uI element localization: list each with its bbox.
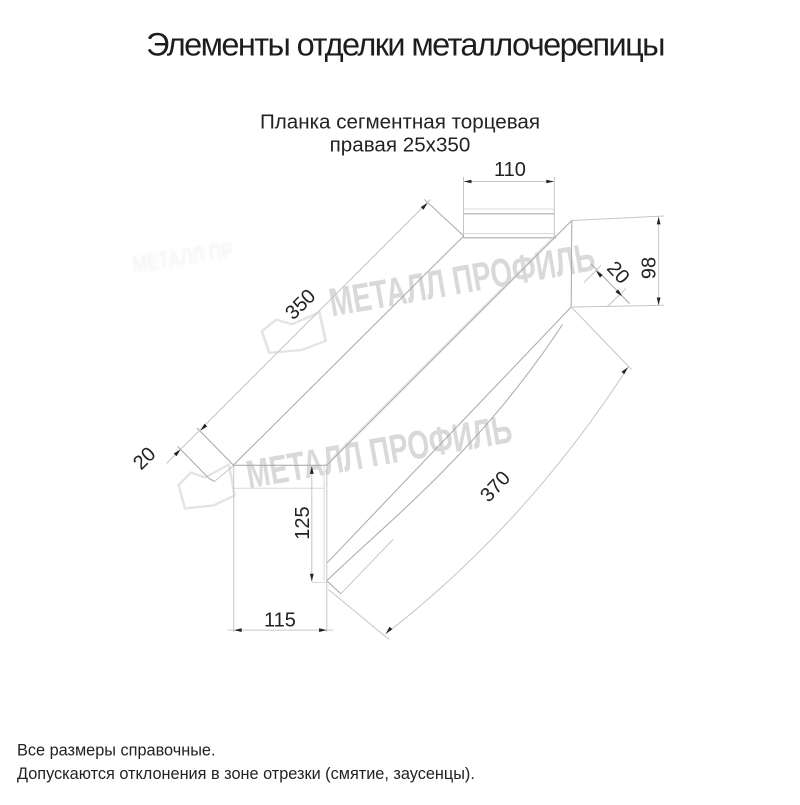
svg-text:Элементы отделки металлочерепи: Элементы отделки металлочерепицы — [146, 26, 664, 62]
svg-text:правая 25х350: правая 25х350 — [330, 134, 471, 157]
svg-text:125: 125 — [292, 506, 314, 539]
svg-text:98: 98 — [639, 257, 661, 279]
svg-text:115: 115 — [264, 610, 296, 632]
svg-text:Планка сегментная торцевая: Планка сегментная торцевая — [260, 111, 540, 134]
svg-text:Все размеры справочные.: Все размеры справочные. — [17, 742, 215, 760]
svg-text:110: 110 — [494, 159, 526, 181]
svg-text:Допускаются отклонения в зоне: Допускаются отклонения в зоне отрезки (с… — [17, 765, 475, 783]
